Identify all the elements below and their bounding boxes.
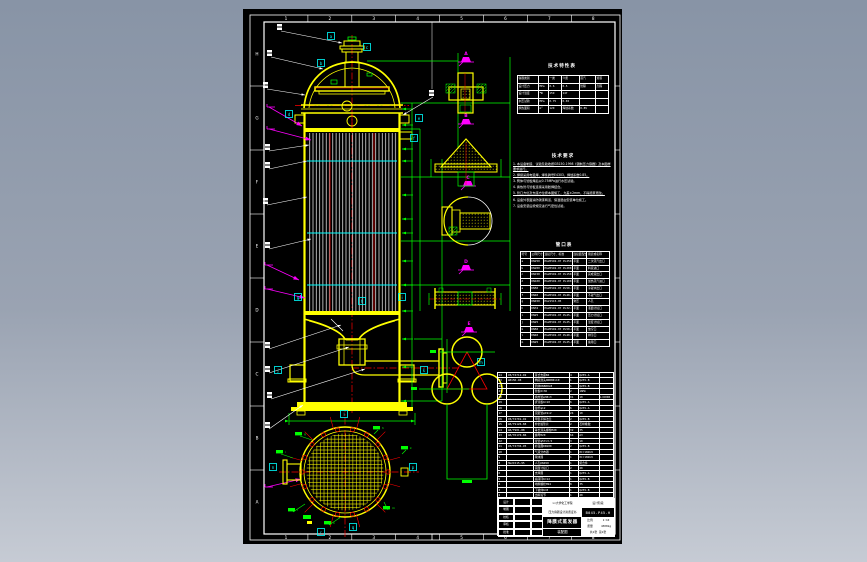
svg-text:8: 8: [592, 16, 595, 21]
svg-text:l: l: [343, 412, 344, 417]
svg-text:e: e: [418, 116, 421, 121]
svg-text:a: a: [330, 34, 333, 39]
note-line: 1. 本设备制造、试验及验收按GB150-1998《钢制压力容器》及本图样要求进…: [513, 162, 613, 172]
note-line: 6. 设备外表面涂防锈漆两道，保温层由安装单位施工。: [513, 198, 613, 203]
svg-text:1: 1: [285, 16, 288, 21]
table-row: aDN250HG20592-97 PL250-0.6平面二次蒸汽出口: [521, 258, 609, 265]
svg-text:3: 3: [372, 535, 375, 540]
nozzle-table: 符号公称尺寸连接尺寸、标准连接面型式用途或名称aDN250HG20592-97 …: [520, 251, 610, 347]
table-row: dDN100HG20592-97 PL100-1.0平面加热蒸汽进口: [521, 278, 609, 285]
vessel-main-view: [288, 37, 447, 415]
table-row: 容器类别一类介质蒸汽溶液: [518, 76, 608, 83]
svg-text:B: B: [464, 113, 468, 119]
tech-table-title: 技术特性表: [517, 64, 607, 69]
svg-text:n: n: [333, 521, 335, 525]
table-row: 设计压力MPa0.60.5管程壳程: [518, 83, 608, 91]
svg-text:c: c: [366, 45, 368, 50]
note-line: 2. 焊接采用电弧焊，焊条牌号E4303，焊缝系数0.85。: [513, 173, 613, 178]
tube-bundle: [307, 133, 397, 311]
title-block: 设计制图校核审核批准 ××大学化工学院 压力容器设计资质证书 降膜式蒸发器 装配…: [497, 497, 614, 536]
table-row: 水压试验MPa0.750.65: [518, 98, 608, 106]
svg-text:k: k: [423, 368, 426, 373]
signature-cell: 批准: [498, 528, 514, 537]
svg-text:i: i: [401, 295, 402, 300]
lower-tubesheet: [304, 311, 400, 315]
svg-text:4: 4: [416, 16, 419, 21]
svg-text:G: G: [255, 116, 258, 121]
svg-text:f: f: [413, 136, 415, 141]
svg-text:E: E: [467, 321, 470, 327]
note-line: 4. 换热管与管板连接采用胀焊结合。: [513, 185, 613, 190]
bill-of-materials: 24JB/T4712-92耳式支座B44Q235-A23GB150-98椭圆封头…: [497, 372, 614, 499]
cad-canvas-background: HGFEDCBA1122334455667788: [0, 0, 867, 562]
svg-text:d: d: [288, 112, 291, 117]
svg-text:1: 1: [285, 535, 288, 540]
svg-text:B: B: [256, 436, 259, 441]
note-line: 3. 筒体与管板焊后以0.75MPa进行水压试验。: [513, 179, 613, 184]
svg-text:H: H: [255, 52, 258, 57]
detail-A-flange-section: [446, 73, 486, 113]
table-row: hDN32HG20592-97 PL32-1.0平面液面计接口: [521, 305, 609, 312]
nozzle-table-title: 管口表: [520, 243, 608, 248]
svg-text:D: D: [255, 308, 258, 313]
table-row: fDN40HG20592-97 PL40-1.0平面不凝气出口: [521, 292, 609, 299]
detail-B-cone-section: [431, 139, 501, 186]
drawing-type-cell: 装配图: [542, 528, 583, 537]
svg-text:i: i: [285, 450, 286, 454]
detail-C-elbow-section: [442, 197, 492, 245]
table-row: gDN450HG21515-95常压人孔: [521, 298, 609, 305]
notes-title: 技术要求: [513, 154, 613, 159]
svg-text:k: k: [410, 446, 412, 450]
svg-text:6: 6: [504, 16, 507, 21]
svg-text:A: A: [256, 500, 259, 505]
svg-text:7: 7: [548, 16, 551, 21]
svg-text:C: C: [256, 372, 259, 377]
table-row: cDN150HG20592-97 PL150-0.6平面完成液出口: [521, 271, 609, 278]
svg-text:q: q: [352, 525, 355, 530]
svg-text:D: D: [464, 259, 468, 265]
svg-text:m: m: [392, 506, 395, 510]
table-row: 换热面积m²120焊缝系数0.85: [518, 105, 608, 113]
table-row: jDN25HG20592-97 PL25-1.0平面温度计接口: [521, 319, 609, 326]
drawing-sheet: HGFEDCBA1122334455667788: [243, 9, 622, 544]
sheet-count-cell: 共1张 第1张: [581, 529, 615, 537]
note-line: 7. 设备安装后按规定进行气密性试验。: [513, 204, 613, 209]
detail-D-pipe-section: [429, 288, 501, 309]
tech-characteristics-table: 容器类别一类介质蒸汽溶液设计压力MPa0.60.5管程壳程设计温度℃159147…: [517, 75, 609, 114]
svg-text:E: E: [256, 244, 259, 249]
svg-text:5: 5: [460, 535, 463, 540]
svg-text:p: p: [412, 465, 415, 470]
table-row: iDN25HG20592-97 PL25-1.0平面压力计接口: [521, 312, 609, 319]
svg-text:4: 4: [416, 535, 419, 540]
technical-notes: 1. 本设备制造、试验及验收按GB150-1998《钢制压力容器》及本图样要求进…: [513, 162, 613, 236]
svg-text:b: b: [320, 61, 323, 66]
svg-text:3: 3: [372, 16, 375, 21]
svg-text:5: 5: [460, 16, 463, 21]
svg-text:h: h: [382, 426, 384, 430]
top-nozzle: [340, 37, 364, 62]
table-row: mDN25HG20592-97 PL25-0.6平面备用口: [521, 339, 609, 346]
bottom-cone: [304, 319, 447, 387]
svg-text:g: g: [297, 295, 300, 300]
svg-text:C: C: [466, 175, 470, 181]
svg-text:h: h: [361, 299, 364, 304]
table-row: 设计温度℃159147: [518, 90, 608, 98]
detail-E-nozzle-layout: [411, 337, 502, 483]
svg-text:g: g: [304, 432, 306, 436]
table-row: eDN50HG20592-97 PL50-1.0平面冷凝水出口: [521, 285, 609, 292]
table-row: lDN40HG20592-97 PL40-0.6平面排污口: [521, 332, 609, 339]
svg-text:A: A: [464, 51, 468, 57]
svg-text:F: F: [256, 180, 259, 185]
upper-tubesheet: [304, 128, 400, 132]
table-row: bDN200HG20592-97 PL200-0.6平面料液进口: [521, 265, 609, 272]
svg-text:n: n: [272, 465, 275, 470]
svg-text:2: 2: [329, 535, 332, 540]
table-row: kDN50HG20592-97 PL50-0.6平面放空口: [521, 326, 609, 333]
note-line: 5. 管口方位及支座方位按本图施工，允差±2mm，不得随意更改。: [513, 191, 613, 196]
svg-text:2: 2: [329, 16, 332, 21]
signature-cell: [514, 528, 531, 537]
svg-text:j: j: [276, 368, 278, 373]
